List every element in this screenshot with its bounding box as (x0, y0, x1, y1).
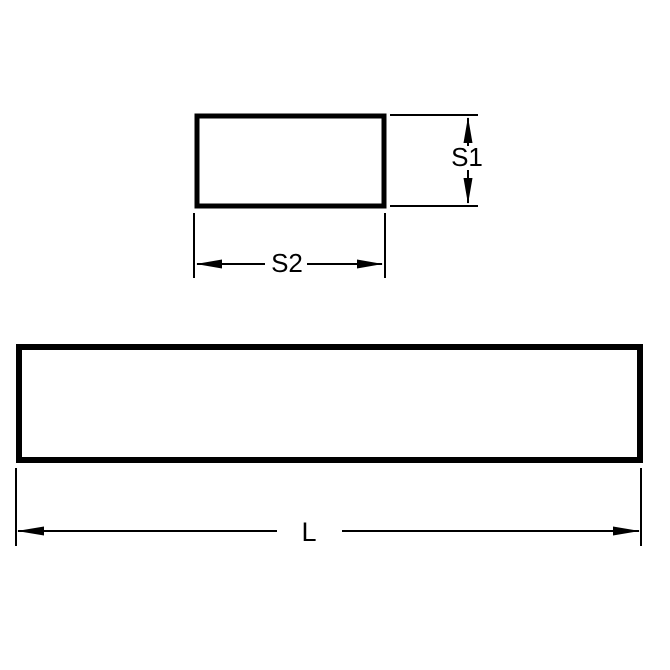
arrow-right-icon (357, 260, 383, 269)
side-view-rectangle (19, 347, 640, 460)
cross-section-view: S1 S2 (194, 115, 483, 278)
arrow-down-icon (464, 178, 473, 204)
cross-section-rectangle (197, 116, 384, 206)
dimension-s2: S2 (194, 213, 385, 278)
arrow-left-icon (17, 527, 44, 536)
dimension-s1: S1 (390, 115, 483, 206)
arrow-up-icon (464, 117, 473, 143)
label-s1: S1 (451, 142, 483, 172)
keystock-dimension-diagram: S1 S2 L (0, 0, 670, 670)
label-l: L (301, 517, 316, 547)
side-view: L (16, 347, 641, 547)
arrow-right-icon (613, 527, 640, 536)
technical-drawing-canvas: S1 S2 L (0, 0, 670, 670)
arrow-left-icon (196, 260, 222, 269)
dimension-l: L (16, 468, 641, 547)
label-s2: S2 (271, 248, 303, 278)
